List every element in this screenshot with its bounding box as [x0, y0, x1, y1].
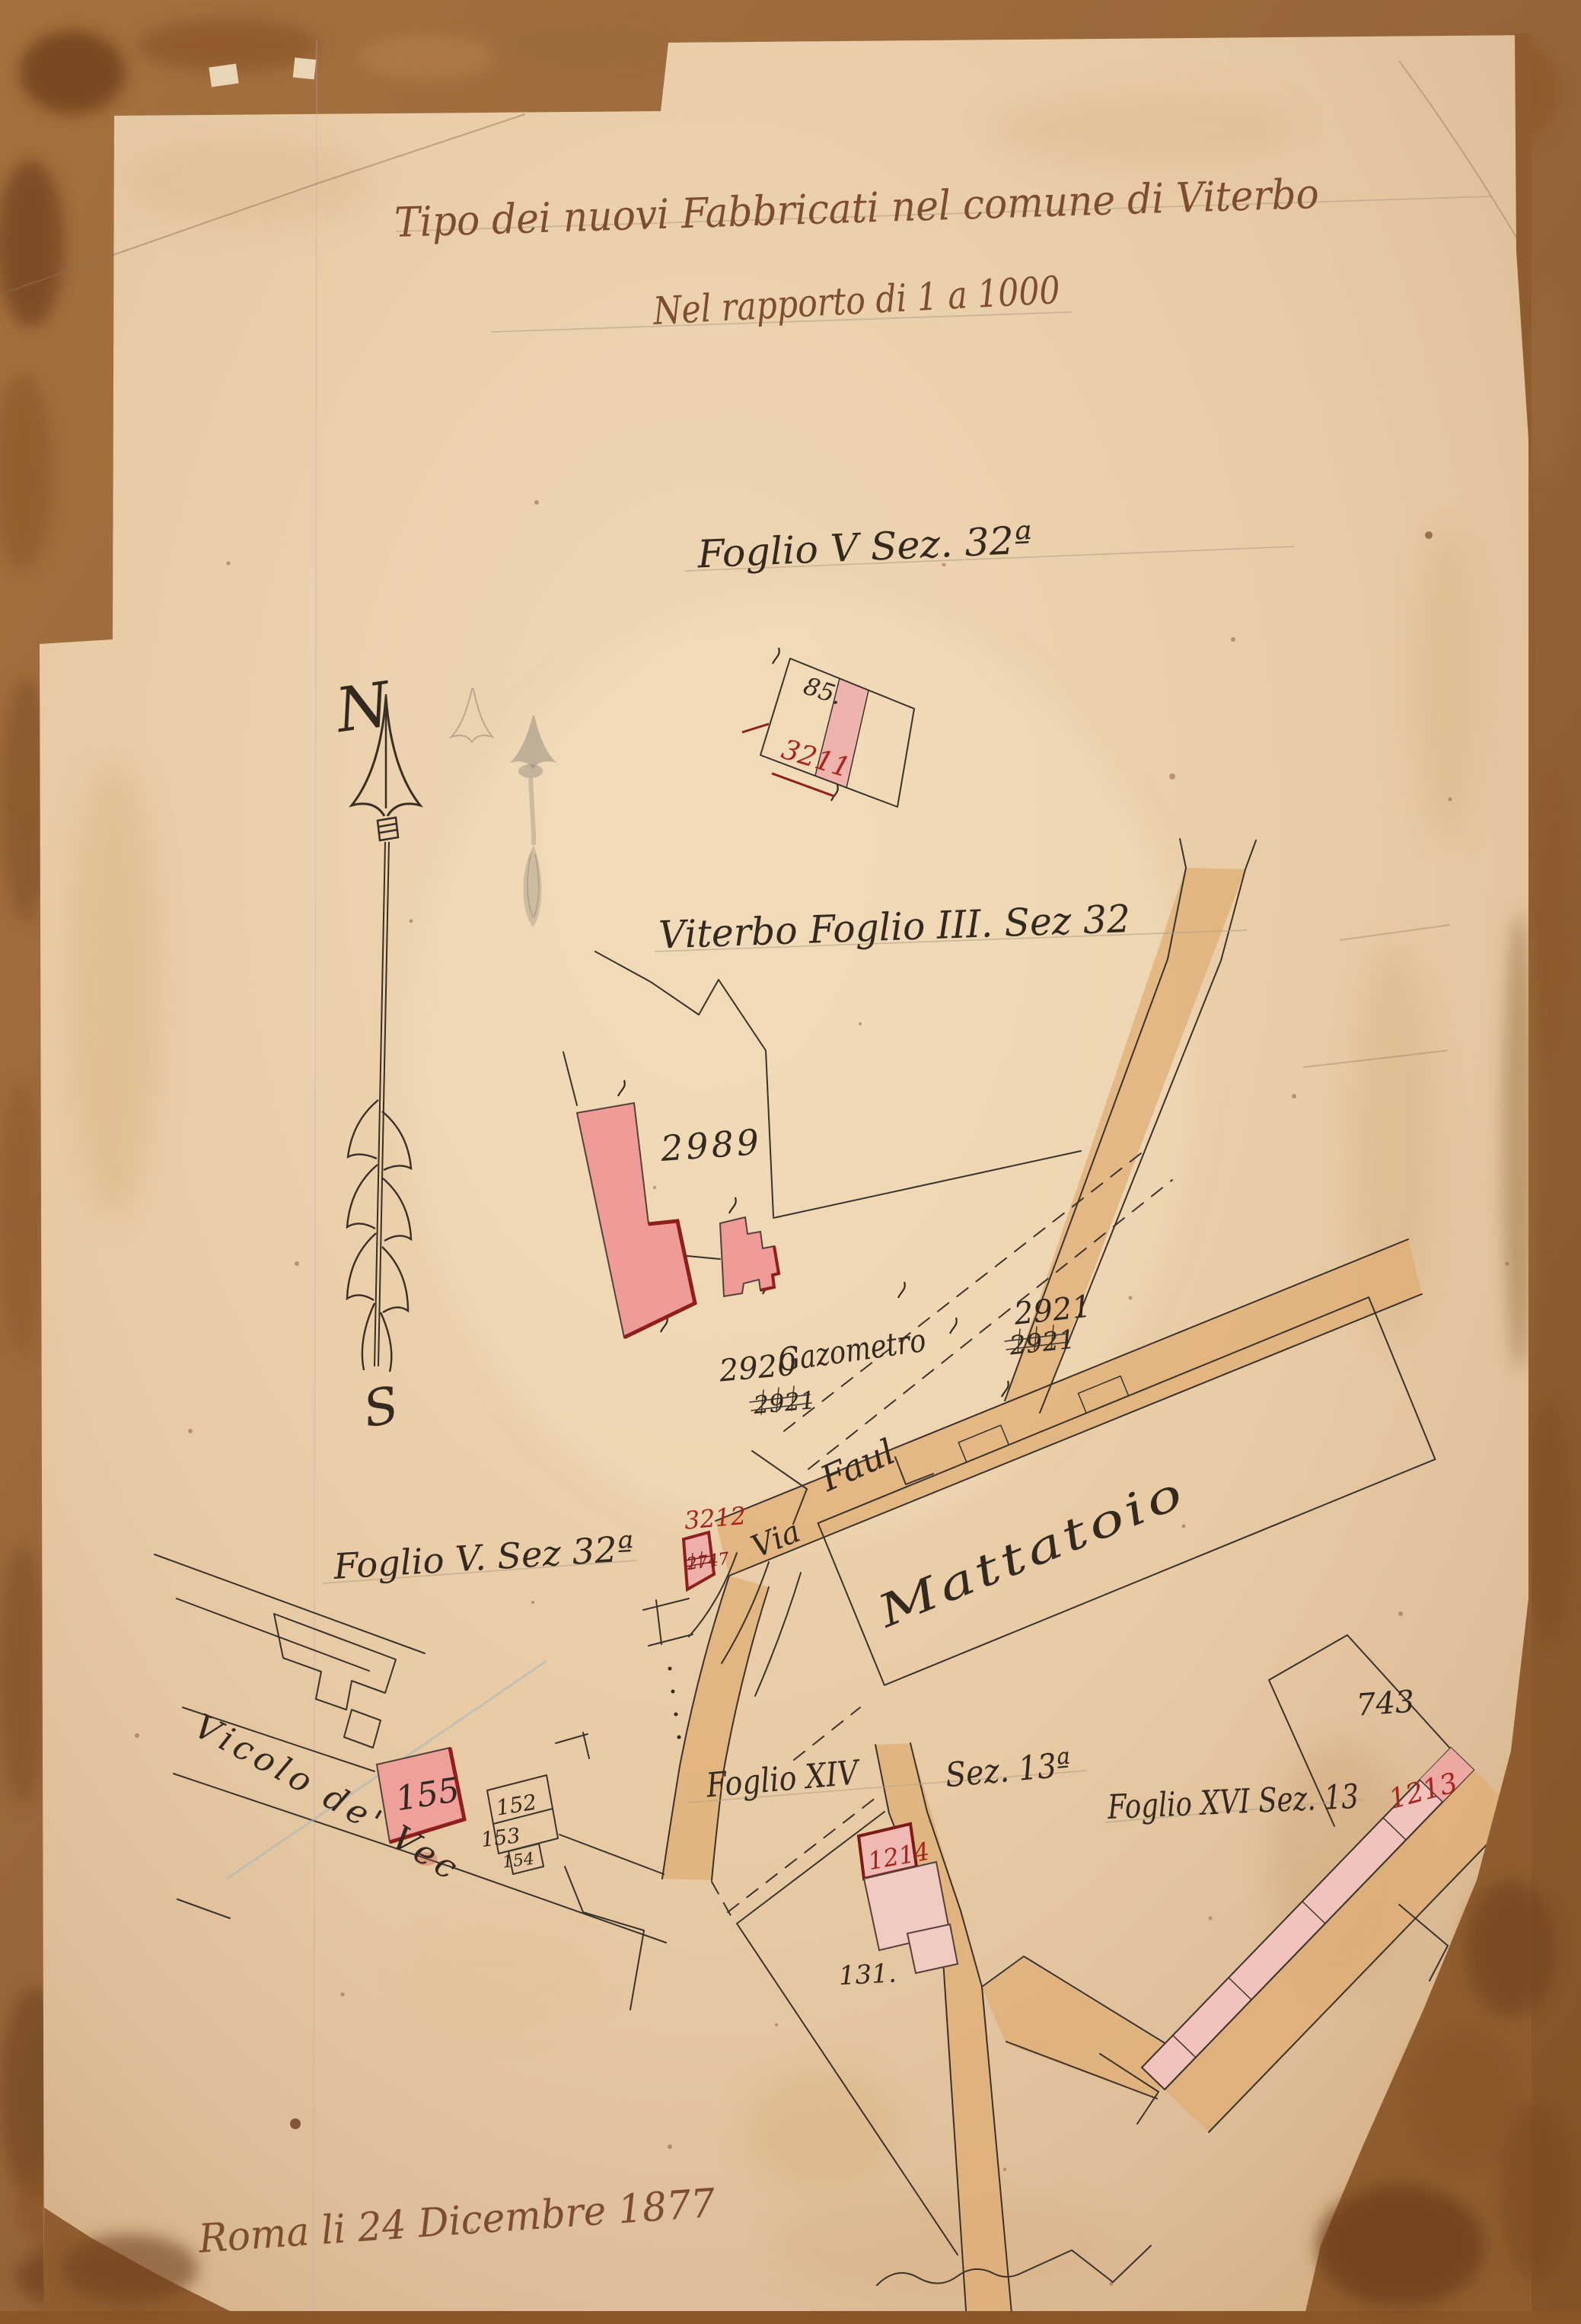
parcel-label-131: 131. — [838, 1958, 897, 1991]
board-stain — [358, 34, 495, 80]
speckle — [653, 1186, 656, 1189]
speckle — [1231, 637, 1235, 642]
paper-stain — [411, 1933, 594, 2025]
board-stain — [19, 30, 126, 114]
paper-stain — [1416, 533, 1477, 837]
parcel-label-2920-struck-group: 2921 — [750, 1385, 817, 1420]
boundary-dot — [671, 1690, 675, 1694]
speckle — [534, 500, 539, 505]
parcel-label-2920: 2920 — [717, 1347, 798, 1389]
map-canvas: Mattatoio — [0, 0, 1581, 2324]
speckle — [775, 2023, 778, 2026]
speckle — [859, 1022, 862, 1025]
tape-fragment — [293, 58, 317, 80]
board-stain — [1500, 2101, 1576, 2284]
board-stain — [137, 19, 320, 72]
speckle — [531, 1601, 534, 1604]
ink-blot — [1169, 773, 1175, 779]
board-stain — [1317, 2185, 1484, 2306]
parcel-label-153: 153 — [480, 1824, 521, 1852]
ink-blot — [290, 2118, 301, 2129]
board-stain — [0, 1545, 47, 1804]
board-stain — [1503, 913, 1536, 1370]
speckle — [341, 1993, 345, 1997]
parcel-label-743: 743 — [1355, 1685, 1415, 1723]
speckle — [227, 562, 231, 566]
boundary-dot — [668, 1667, 672, 1671]
paper-stain — [990, 91, 1294, 167]
boundary-dot — [674, 1713, 678, 1717]
boundary-dot — [677, 1736, 681, 1739]
board-stain — [1465, 1880, 1557, 2017]
building-1214-annex — [907, 1924, 958, 1973]
ink-blot — [1425, 531, 1433, 539]
paper-stain — [129, 137, 373, 228]
speckle — [295, 1261, 299, 1266]
board-stain — [1528, 1401, 1570, 1644]
paper-stain — [69, 761, 160, 1218]
speckle — [135, 1733, 139, 1738]
tape-fragment — [209, 64, 238, 88]
scanned-cadastral-map: Mattatoio — [0, 0, 1581, 2324]
speckle — [410, 920, 413, 923]
parcel-label-3212: 3212 — [683, 1501, 747, 1535]
board-stain — [1534, 761, 1572, 1066]
board-stain — [495, 24, 662, 67]
speckle — [1003, 2168, 1006, 2171]
parcel-label-2989: 2989 — [658, 1121, 763, 1169]
board-stain — [0, 1081, 44, 1355]
board-edge-bottom — [0, 2311, 1581, 2324]
board-stain — [61, 2234, 198, 2303]
speckle — [1292, 1094, 1296, 1098]
speckle — [1209, 1917, 1213, 1921]
speckle — [1182, 1525, 1186, 1529]
speckle — [668, 2144, 672, 2149]
speckle — [1398, 1611, 1403, 1616]
speckle — [1449, 798, 1452, 802]
speckle — [1129, 1296, 1133, 1300]
parcel-label-154: 154 — [502, 1850, 536, 1873]
pencil-arrow-collar — [518, 764, 543, 778]
speckle — [188, 1429, 193, 1433]
